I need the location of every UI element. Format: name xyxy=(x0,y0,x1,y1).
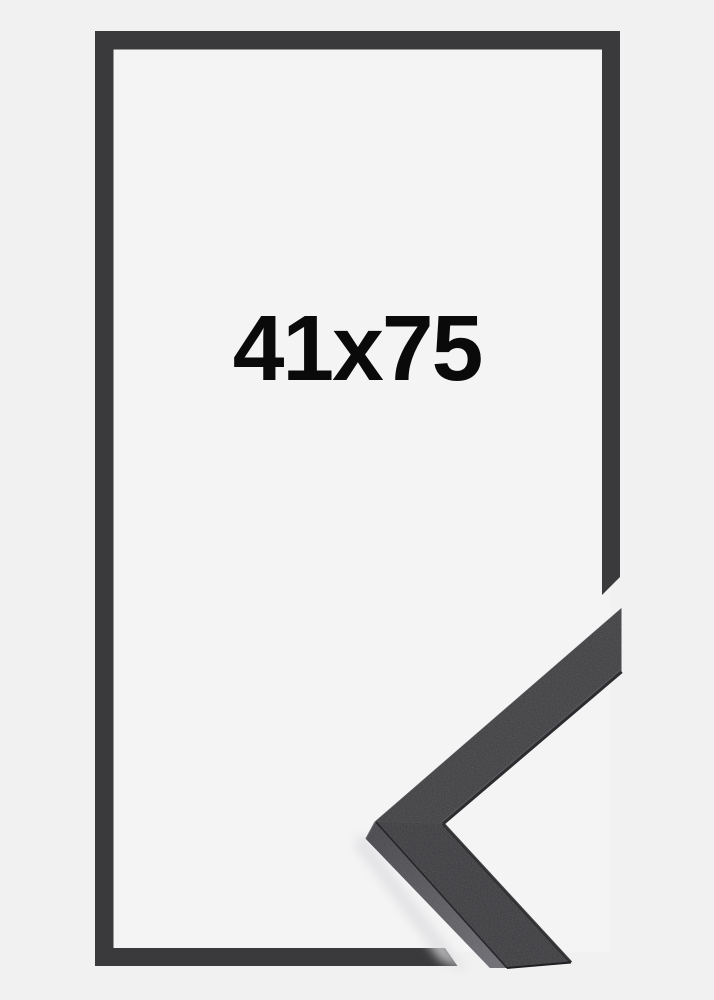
frame-illustration xyxy=(0,0,714,1000)
size-label: 41x75 xyxy=(0,296,714,400)
frame-inner-area xyxy=(104,40,611,952)
frame-product-image: 41x75 xyxy=(0,0,714,1000)
